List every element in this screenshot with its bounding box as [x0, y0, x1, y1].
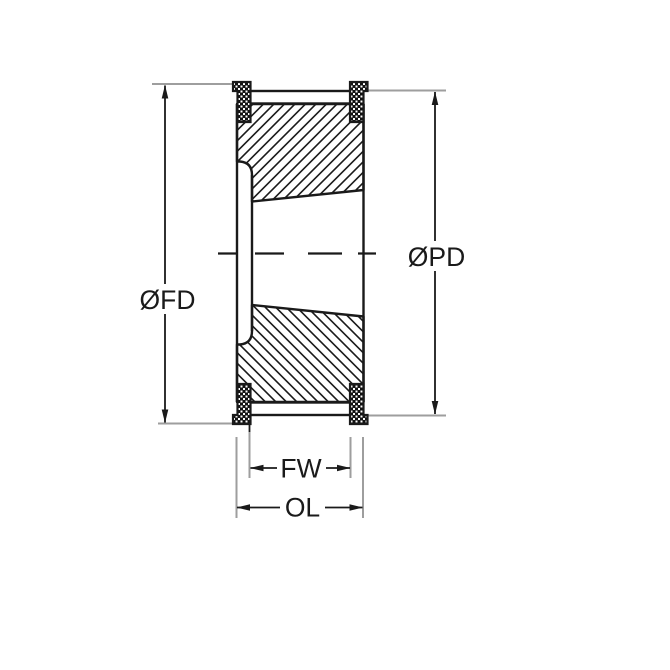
- dimension-pd: ØPD: [407, 92, 466, 415]
- ol-arrow-right: [350, 504, 364, 511]
- drawing-canvas: ØFD ØPD FW OL: [0, 0, 670, 670]
- body-section-bottom: [237, 305, 364, 402]
- pulley-cross-section-diagram: ØFD ØPD FW OL: [0, 0, 670, 670]
- pd-label: ØPD: [408, 242, 465, 272]
- rim-band-top: [246, 91, 353, 104]
- rim-band-bottom: [246, 403, 353, 416]
- fw-label: FW: [280, 454, 321, 484]
- fd-label: ØFD: [140, 285, 196, 315]
- pd-arrow-down: [432, 401, 439, 415]
- dimension-fd: ØFD: [139, 85, 196, 423]
- ol-label: OL: [285, 493, 320, 523]
- flange-bottom-left: [233, 384, 251, 424]
- fw-arrow-right: [337, 465, 351, 472]
- flange-top-right: [350, 82, 368, 122]
- flange-top-left: [233, 82, 251, 122]
- dimension-ol: OL: [237, 493, 364, 523]
- flange-bottom-right: [350, 384, 368, 424]
- fd-arrow-down: [162, 410, 169, 424]
- ol-arrow-left: [237, 504, 251, 511]
- fd-arrow-up: [162, 85, 169, 99]
- pd-arrow-up: [432, 92, 439, 106]
- body-section-top: [237, 104, 364, 202]
- fw-arrow-left: [250, 465, 264, 472]
- dimension-fw: FW: [250, 454, 351, 484]
